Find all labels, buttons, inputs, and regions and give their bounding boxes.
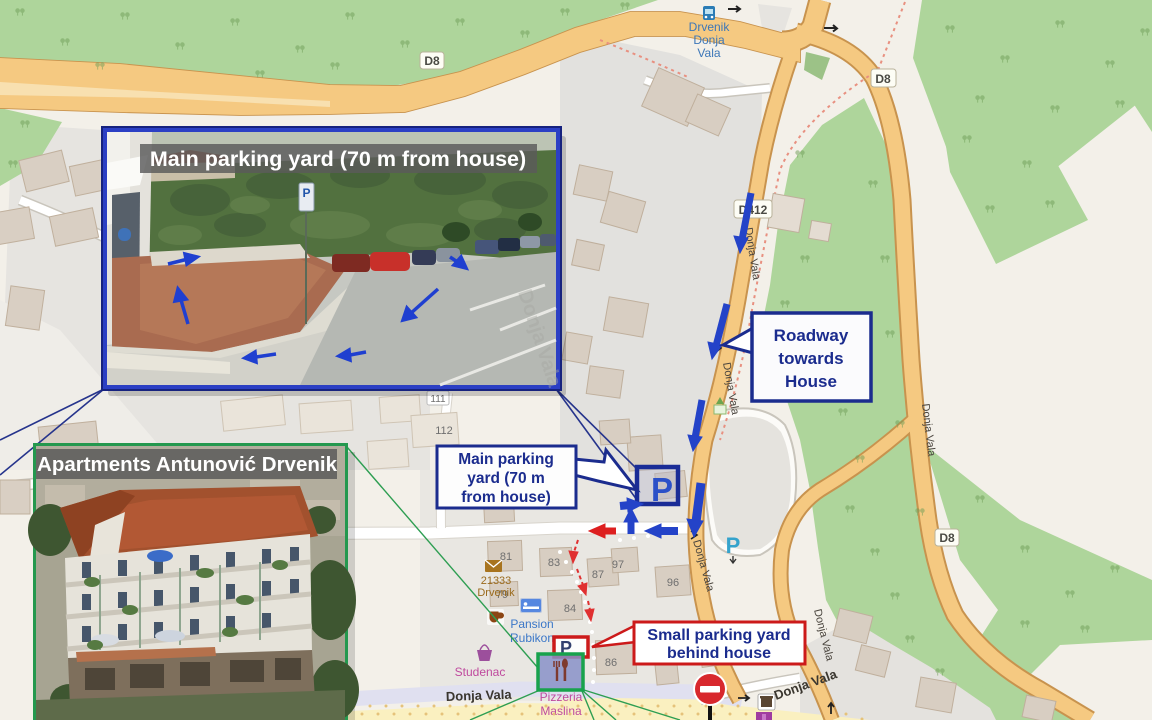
- svg-text:D412: D412: [739, 203, 768, 217]
- svg-text:behind house: behind house: [667, 645, 771, 662]
- svg-text:P: P: [651, 471, 673, 508]
- svg-text:86: 86: [605, 657, 617, 669]
- svg-text:Main parking: Main parking: [458, 451, 554, 468]
- svg-text:D8: D8: [875, 72, 891, 86]
- svg-text:Roadway: Roadway: [774, 326, 849, 345]
- svg-text:83: 83: [548, 557, 560, 569]
- svg-text:Drvenik: Drvenik: [689, 20, 731, 34]
- svg-text:D8: D8: [424, 54, 440, 68]
- svg-text:96: 96: [667, 577, 679, 589]
- svg-text:87: 87: [592, 569, 604, 581]
- svg-text:D8: D8: [939, 531, 955, 545]
- svg-text:112: 112: [435, 425, 453, 437]
- svg-text:P: P: [302, 186, 310, 200]
- svg-text:Drvenik: Drvenik: [477, 587, 515, 599]
- svg-text:towards: towards: [778, 349, 843, 368]
- svg-text:yard (70 m: yard (70 m: [467, 470, 545, 487]
- svg-text:84: 84: [564, 603, 576, 615]
- svg-text:House: House: [785, 372, 837, 391]
- svg-text:Main parking yard (70 m from h: Main parking yard (70 m from house): [150, 147, 526, 171]
- svg-text:Donja Vala: Donja Vala: [446, 687, 513, 704]
- svg-text:Small parking yard: Small parking yard: [647, 627, 790, 644]
- svg-text:Donja: Donja: [693, 33, 725, 47]
- svg-text:Pizzeria: Pizzeria: [540, 690, 583, 704]
- svg-text:from house): from house): [461, 489, 551, 506]
- svg-text:Pansion: Pansion: [510, 617, 553, 631]
- svg-text:21333: 21333: [481, 575, 512, 587]
- svg-text:97: 97: [612, 559, 624, 571]
- svg-text:Vala: Vala: [697, 46, 720, 60]
- svg-text:Studenac: Studenac: [455, 665, 506, 679]
- svg-text:P: P: [726, 533, 741, 558]
- svg-text:Apartments Antunović Drvenik: Apartments Antunović Drvenik: [37, 453, 338, 476]
